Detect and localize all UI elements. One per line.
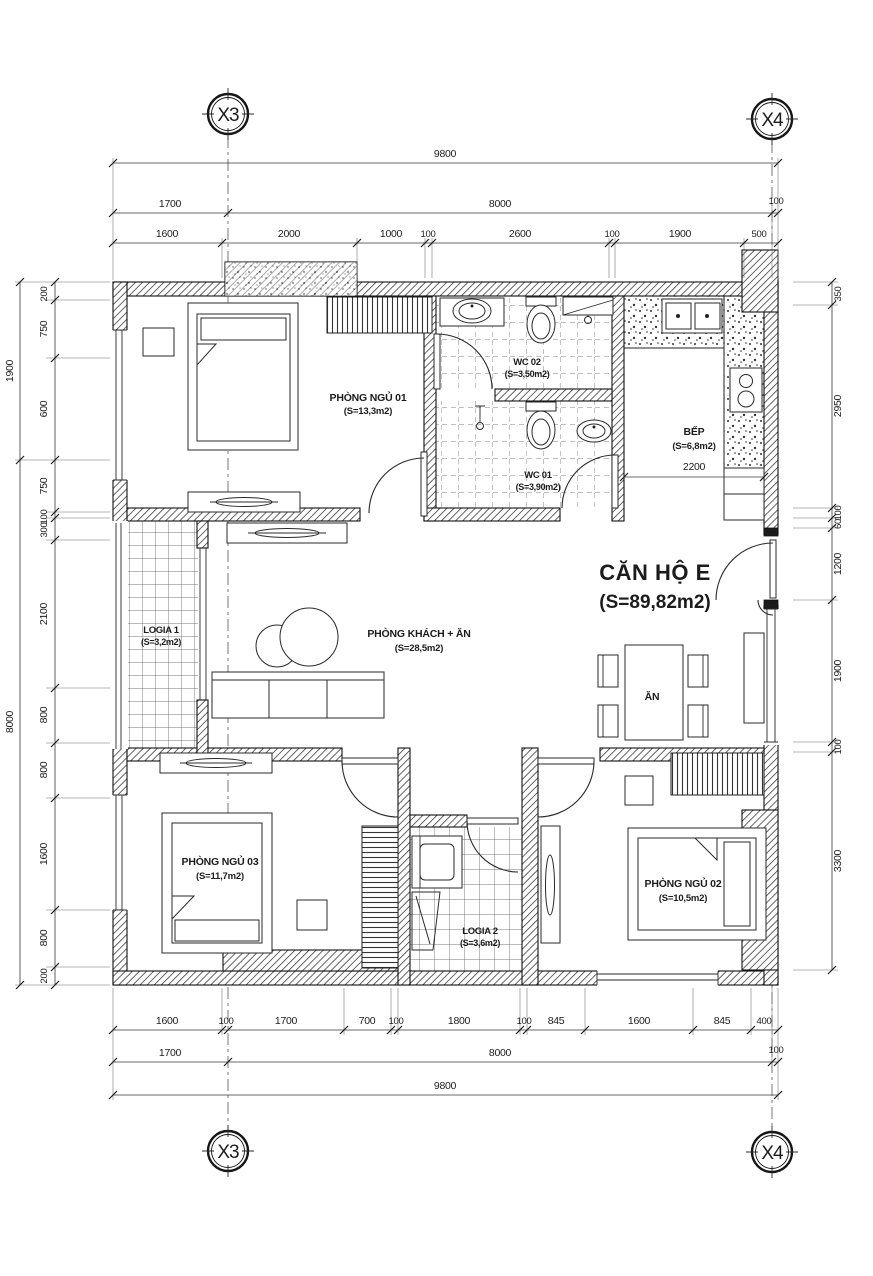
dim-top-1: 2000: [278, 228, 301, 240]
label-kitchen-area: (S=6,8m2): [672, 441, 715, 452]
dim-bot-mid-1: 8000: [489, 1047, 512, 1059]
dimensions-bottom: 1600 100 1700 700 100 1800 100 845 1600 …: [109, 988, 783, 1100]
dim-bot-2: 1700: [275, 1015, 298, 1027]
nightstand-03: [297, 900, 327, 930]
dim-top-total: 9800: [434, 148, 457, 160]
label-logia1-area: (S=3,2m2): [141, 637, 181, 647]
dim-left-10: 800: [38, 929, 50, 946]
dim-bot-total: 9800: [434, 1080, 457, 1092]
dim-left-outer-0: 1900: [4, 359, 16, 382]
tv-cabinet-02: [541, 826, 560, 943]
window-bed01-gap: [112, 330, 128, 480]
label-bed01-area: (S=13,3m2): [344, 406, 392, 417]
axis-x3-top: X3: [202, 88, 254, 140]
dim-left-8: 800: [38, 761, 50, 778]
window-logia1-inner: [200, 548, 206, 700]
wall-wc-divider: [495, 389, 612, 401]
label-wc01-area: (S=3,90m2): [516, 482, 561, 492]
label-wc02-area: (S=3,50m2): [505, 369, 550, 379]
dim-left-11: 200: [39, 969, 50, 984]
axis-x4-top: X4: [746, 93, 798, 145]
wall-top: [113, 282, 778, 296]
bed-double-01: [188, 303, 298, 450]
window-bed03-gap: [112, 795, 128, 910]
label-kitchen-name: BẾP: [684, 425, 705, 438]
bed02-furniture: [541, 753, 766, 943]
dim-left-2: 600: [38, 400, 50, 417]
label-apartment-name: CĂN HỘ E: [599, 560, 711, 585]
dim-right-0: 350: [833, 287, 844, 302]
dim-bot-7: 845: [548, 1015, 565, 1027]
dim-top-4: 2600: [509, 228, 532, 240]
dim-top-5: 100: [605, 229, 620, 240]
dim-right-2: 100: [833, 506, 844, 521]
label-logia1-name: LOGIA 1: [143, 625, 180, 636]
dim-bot-1: 100: [219, 1016, 234, 1027]
dim-bot-mid-2: 100: [769, 1045, 784, 1056]
door-leaf-entry: [770, 540, 776, 598]
sink-drain-left: [676, 314, 680, 318]
door-leaf-bed02: [538, 758, 594, 764]
dim-top-3: 100: [421, 229, 436, 240]
nightstand-01: [143, 328, 174, 356]
label-bed01-name: PHÒNG NGỦ 01: [330, 391, 407, 404]
hall-cabinet: [744, 633, 764, 723]
dim-bot-3: 700: [359, 1015, 376, 1027]
wardrobe-01: [327, 297, 432, 333]
dim-bot-4: 100: [389, 1016, 404, 1027]
mullion-logia1-top: [197, 521, 208, 548]
coffee-table-large: [280, 608, 338, 666]
dim-bot-5: 1800: [448, 1015, 471, 1027]
door-leaf-wc02: [434, 334, 440, 389]
axis-x4-bottom-label: X4: [761, 1143, 784, 1164]
toilet-tank-wc01: [526, 402, 556, 411]
wall-mid-center: [424, 508, 560, 521]
label-wc01-name: WC 01: [524, 470, 553, 481]
dim-left-3: 750: [38, 477, 50, 494]
toilet-wc02: [527, 305, 555, 343]
sink-drain-right: [705, 314, 709, 318]
dim-bot-8: 1600: [628, 1015, 651, 1027]
axis-x3-top-label: X3: [217, 105, 239, 126]
dim-kitchen-width: 2200: [683, 461, 706, 473]
dim-right-1: 2950: [832, 394, 844, 417]
wardrobe-03: [362, 826, 398, 968]
floor-plan-sheet: 9800 1700 8000 100 1600 2000 1000 100 26…: [0, 0, 873, 1276]
dim-left-outer-1: 8000: [4, 710, 16, 733]
label-bed03-area: (S=11,7m2): [196, 871, 244, 882]
chair-4: [688, 705, 708, 737]
wall-logia2-right: [522, 748, 538, 985]
kitchen-cabinet-2: [724, 494, 764, 520]
dim-right-6: 100: [833, 740, 844, 755]
bed01-furniture: [143, 297, 432, 512]
door-swing-bed02: [538, 761, 594, 817]
label-logia2-name: LOGIA 2: [462, 926, 498, 937]
door-leaf-wc01: [612, 455, 618, 508]
living-furniture: [212, 523, 384, 718]
bed-double-03: [162, 813, 272, 953]
railing-logia1-gap: [112, 521, 128, 749]
chair-2: [598, 705, 618, 737]
label-bed03-name: PHÒNG NGỦ 03: [182, 855, 259, 868]
dim-left-4: 100: [39, 510, 50, 525]
dim-top-0: 1600: [156, 228, 179, 240]
floor-plan-drawing: 9800 1700 8000 100 1600 2000 1000 100 26…: [0, 0, 873, 1276]
entry-jamb-top: [764, 528, 778, 536]
nightstand-02: [625, 776, 653, 805]
axis-x4-top-label: X4: [761, 110, 784, 131]
dim-left-7: 800: [38, 706, 50, 723]
dim-top-7: 500: [752, 229, 767, 240]
label-living-area: (S=28,5m2): [395, 643, 443, 654]
axis-x3-bottom: X3: [202, 1125, 254, 1177]
mullion-logia1-bottom: [197, 700, 208, 755]
door-leaf-bed03: [342, 758, 398, 764]
dim-top-mid-0: 1700: [159, 198, 182, 210]
dim-bot-6: 100: [517, 1016, 532, 1027]
entry-jamb-bottom: [764, 600, 778, 609]
chair-1: [598, 655, 618, 687]
window-bed02-gap: [597, 970, 718, 986]
wall-logia2-left: [398, 748, 410, 985]
dim-top-2: 1000: [380, 228, 403, 240]
dining-furniture: [598, 633, 764, 740]
dimensions-left: 200 750 600 750 100 300 2100 800 800 160…: [4, 278, 110, 989]
dim-top-mid-1: 8000: [489, 198, 512, 210]
door-leaf-logia2: [467, 818, 518, 824]
dim-bot-mid-0: 1700: [159, 1047, 182, 1059]
wardrobe-02: [671, 753, 764, 795]
chair-3: [688, 655, 708, 687]
sink-wc02-drain: [471, 305, 474, 308]
door-swing-bed01: [369, 458, 424, 513]
sink-wc01-drain: [593, 426, 596, 429]
toilet-wc01: [527, 411, 555, 449]
sink-wc01: [577, 420, 611, 442]
label-dining: ĂN: [645, 690, 660, 703]
dim-left-0: 200: [39, 287, 50, 302]
kitchen-cabinet-1: [724, 468, 764, 494]
axis-x3-bottom-label: X3: [217, 1142, 239, 1163]
dim-top-6: 1900: [669, 228, 692, 240]
dim-left-1: 750: [38, 320, 50, 337]
dim-right-3: 60: [833, 519, 844, 529]
sofa: [212, 672, 384, 718]
dim-left-5: 300: [39, 523, 50, 538]
window-dining-gap: [763, 609, 779, 745]
column-top-right: [742, 250, 778, 312]
door-leaf-bed01: [421, 452, 427, 516]
dimensions-top: 9800 1700 8000 100 1600 2000 1000 100 26…: [109, 148, 783, 280]
label-logia2-area: (S=3,6m2): [460, 938, 500, 948]
dim-left-9: 1600: [38, 842, 50, 865]
wall-logia2-top: [410, 815, 467, 827]
parapet-texture: [225, 262, 357, 296]
dim-right-5: 1900: [832, 659, 844, 682]
dim-bot-0: 1600: [156, 1015, 179, 1027]
label-bed02-area: (S=10,5m2): [659, 893, 707, 904]
axis-x4-bottom: X4: [746, 1126, 798, 1178]
label-wc02-name: WC 02: [513, 357, 541, 368]
dim-left-6: 2100: [38, 602, 50, 625]
dimensions-right: 350 2950 100 60 1200 1900 100 3300: [793, 278, 844, 974]
label-bed02-name: PHÒNG NGỦ 02: [645, 877, 722, 890]
kitchen-sink: [662, 299, 722, 333]
label-living-name: PHÒNG KHÁCH + ĂN: [367, 627, 470, 640]
dim-right-4: 1200: [832, 552, 844, 575]
dim-right-7: 3300: [832, 849, 844, 872]
dim-top-mid-2: 100: [769, 196, 784, 207]
dim-bot-10: 400: [757, 1016, 772, 1027]
dim-bot-9: 845: [714, 1015, 731, 1027]
label-apartment-area: (S=89,82m2): [599, 592, 710, 613]
door-swing-bed03: [342, 761, 398, 817]
